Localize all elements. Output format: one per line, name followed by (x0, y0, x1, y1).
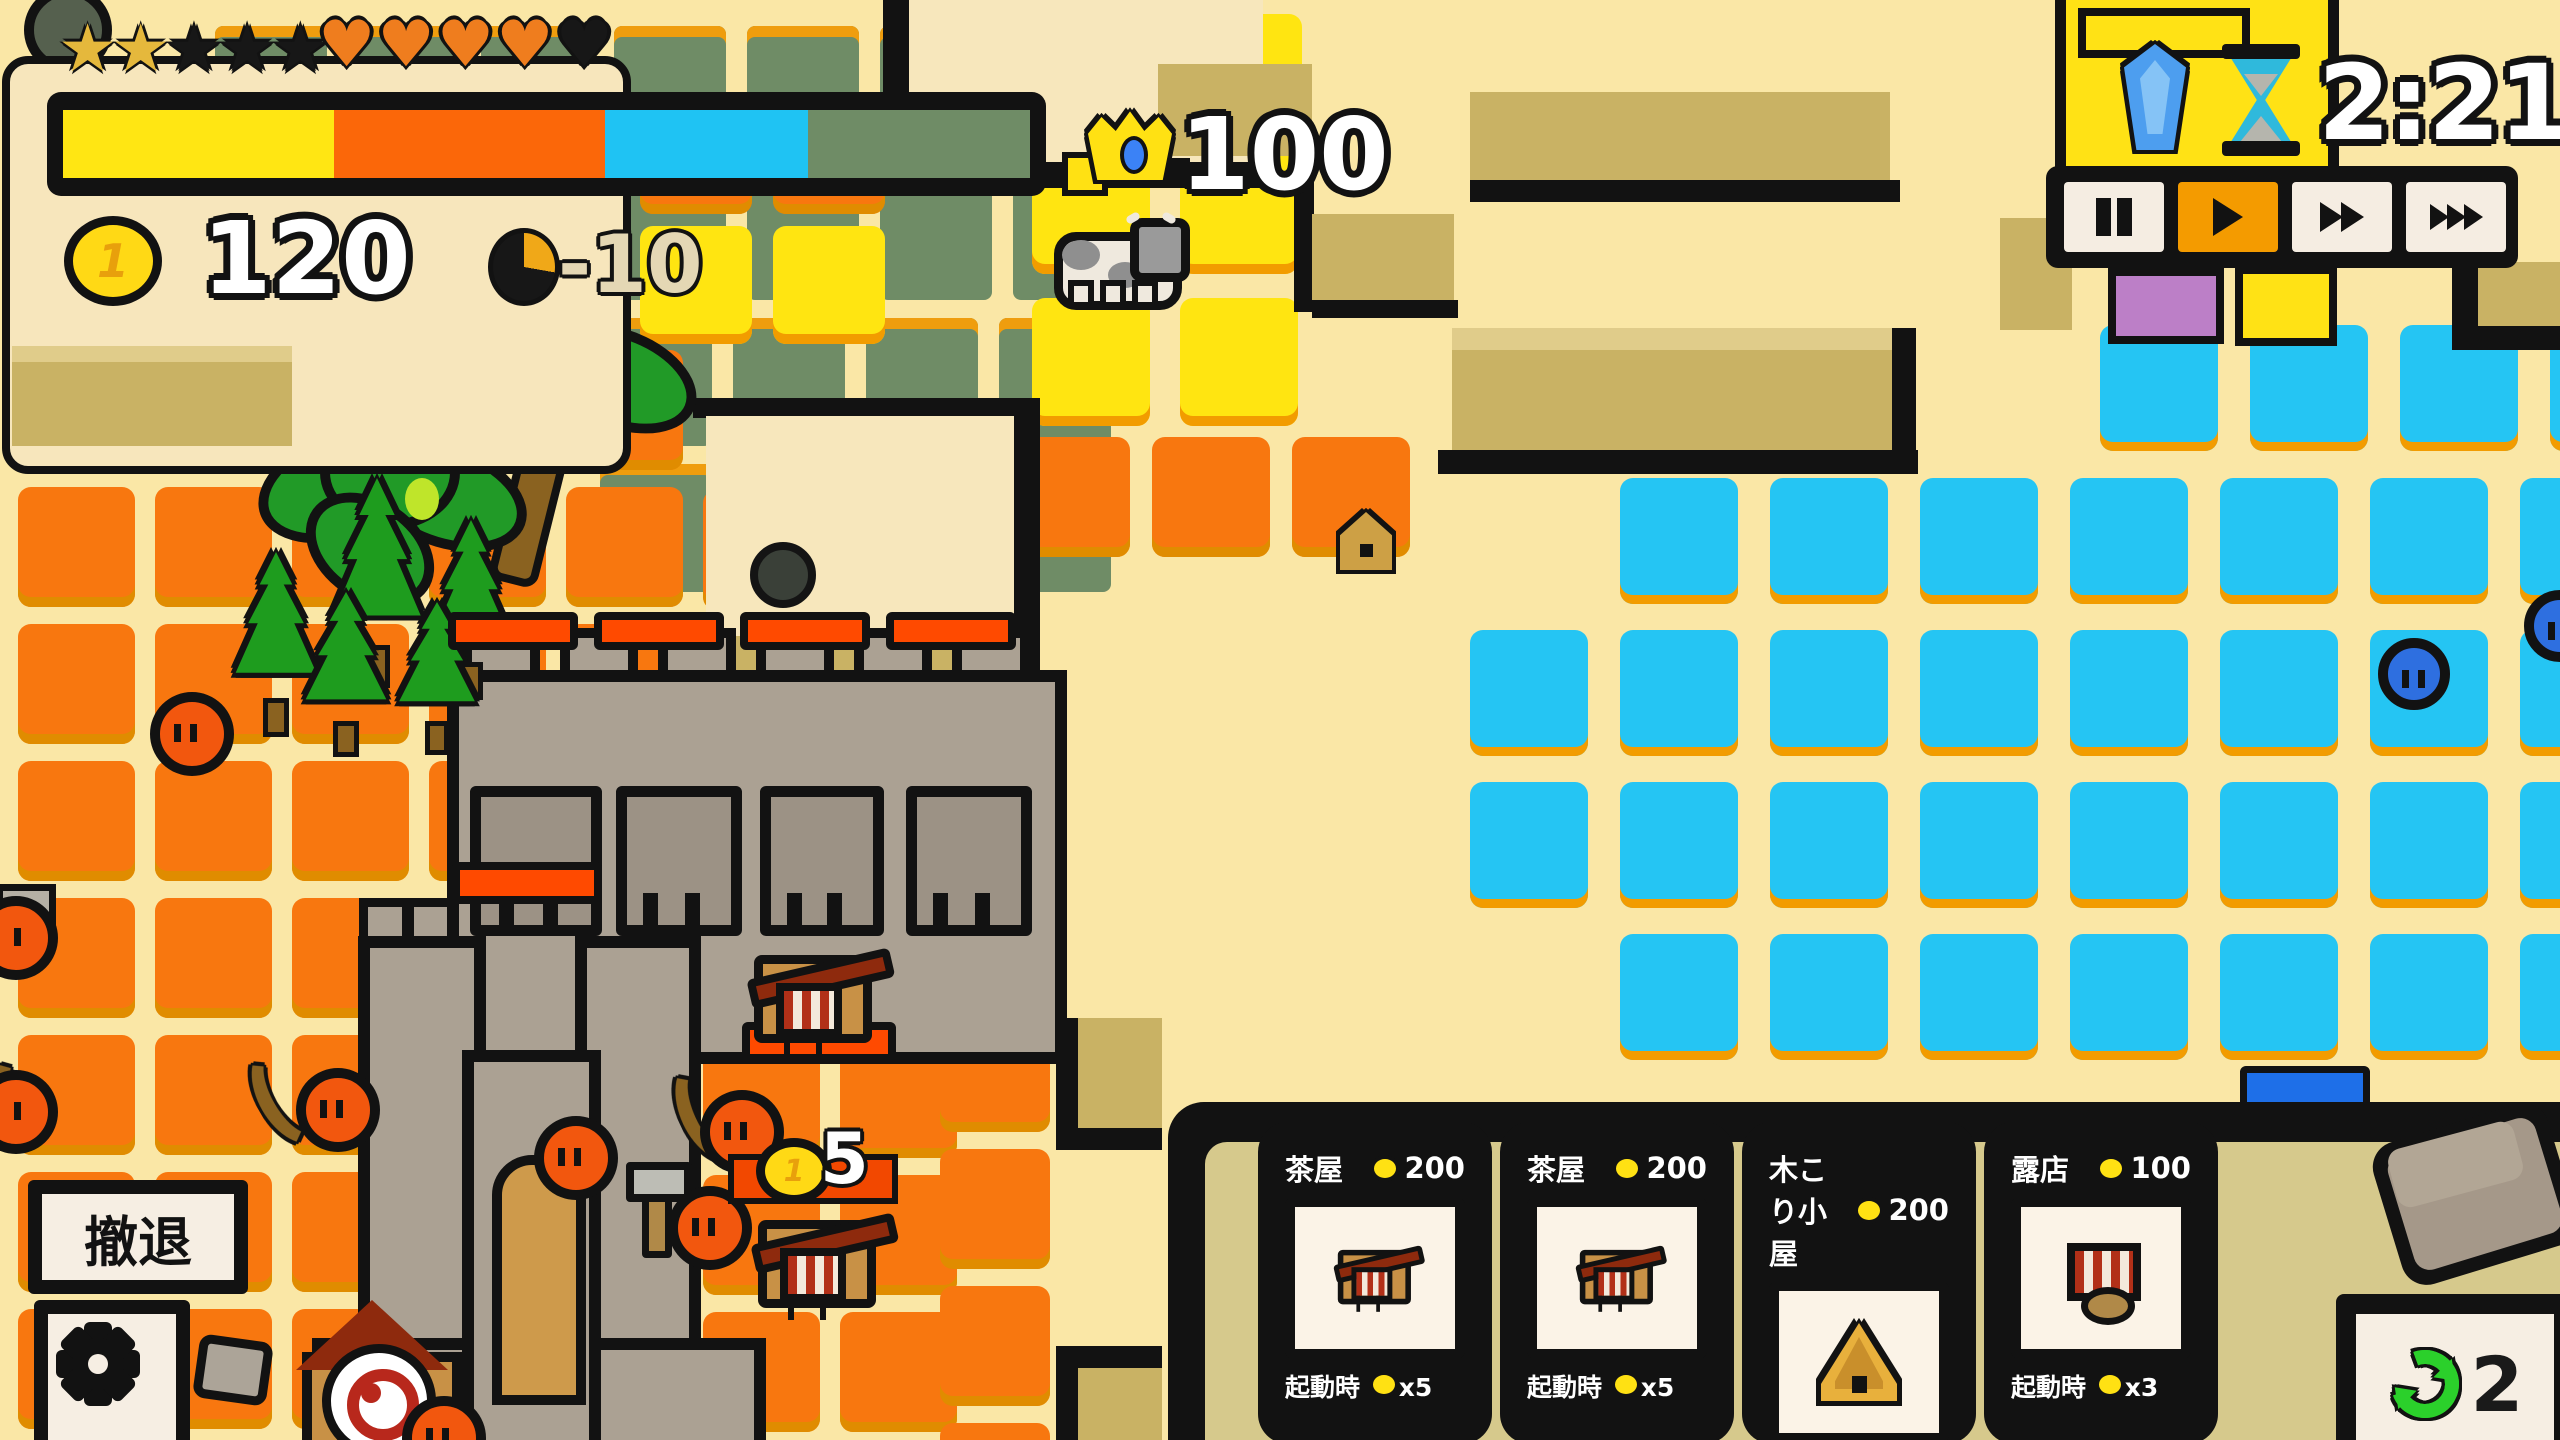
wall-health-bar (594, 612, 724, 650)
teahouse-icon (1335, 1231, 1414, 1317)
coin-symbol: 1 (784, 1154, 805, 1189)
plateau-wall (1452, 350, 1902, 458)
map-tile-orange (566, 487, 683, 607)
wall-health-bar-small (452, 862, 602, 904)
coin-icon (2096, 1155, 2126, 1182)
card-cost: 200 (1646, 1151, 1707, 1185)
reroll-count: 2 (2471, 1340, 2524, 1429)
star-filled-icon: ★ (111, 10, 164, 87)
card-stall[interactable]: 露店 100 起動時 x3 (1984, 1122, 2218, 1440)
map-tile-cyan (2370, 934, 2488, 1060)
wall-health-bar (740, 612, 870, 650)
plateau-border (1892, 328, 1916, 474)
plateau-wall (1078, 1018, 1162, 1130)
wave-progress-bar (47, 92, 1046, 196)
map-tile-orange (940, 1423, 1050, 1440)
map-tile-cyan (1770, 478, 1888, 604)
star-filled-icon: ★ (58, 10, 111, 87)
map-tile-cyan (1770, 934, 1888, 1060)
map-tile-cyan (2220, 478, 2338, 604)
card-image (1769, 1281, 1949, 1440)
plateau-border (693, 398, 1021, 418)
coin-icon (1854, 1197, 1884, 1224)
reroll-button[interactable]: 2 (2336, 1294, 2560, 1440)
pause-button[interactable] (2064, 182, 2164, 252)
coin-symbol: 1 (97, 234, 129, 288)
coin-icon (1369, 1371, 1399, 1398)
map-tile-cyan (1920, 934, 2038, 1060)
map-tile-cyan (1920, 478, 2038, 604)
map-tile-cyan (1620, 478, 1738, 604)
plateau-border (1056, 1346, 1162, 1368)
card-image (1527, 1197, 1707, 1359)
coin-gain-value: 5 (820, 1118, 869, 1200)
boulder (750, 542, 816, 608)
coin-delta: -10 (558, 218, 703, 311)
card-effect: 起動時 x5 (1285, 1371, 1465, 1404)
hud-panel-ledge-top (12, 346, 292, 362)
play-icon (2213, 198, 2243, 236)
small-rock (192, 1333, 274, 1407)
card-cost: 100 (2130, 1151, 2191, 1185)
retreat-label: 撤退 (84, 1198, 192, 1277)
plateau-wall (1452, 328, 1902, 350)
map-tile-yellow (1032, 298, 1150, 426)
teahouse-building (750, 925, 878, 1063)
card-effect: 起動時 x3 (2011, 1371, 2191, 1404)
star-rating: ★★★★★ (58, 10, 324, 87)
card-image (2011, 1197, 2191, 1359)
coin-icon (1370, 1155, 1400, 1182)
plateau-wall (1470, 92, 1890, 187)
map-tile-cyan (1770, 782, 1888, 908)
woodcutter-hut-icon (1821, 1323, 1897, 1401)
coin-icon: 1 (64, 216, 162, 306)
fast-forward-2-icon (2320, 202, 2343, 232)
plateau-border (1056, 1368, 1078, 1440)
map-tile-cyan (2070, 934, 2188, 1060)
map-tile-cyan (2070, 782, 2188, 908)
map-tile-cyan (2220, 934, 2338, 1060)
map-tile-cyan (2520, 934, 2560, 1060)
reroll-icon (2387, 1346, 2463, 1422)
castle-window (470, 786, 602, 936)
map-tile-cyan (2520, 782, 2560, 908)
map-tile-cyan (2520, 478, 2560, 604)
plateau-wall (2478, 262, 2560, 328)
card-name: 木こり小屋 (1769, 1147, 1854, 1273)
teahouse-building (754, 1190, 882, 1328)
yellow-building-part (2235, 266, 2337, 346)
map-tile-cyan (1620, 782, 1738, 908)
heart-filled-icon: ♥ (496, 8, 555, 82)
cow (1046, 212, 1180, 308)
hut-marker (1340, 512, 1392, 570)
plateau-wall (1312, 214, 1454, 310)
crown-gem (1120, 136, 1148, 174)
star-empty-icon: ★ (271, 10, 324, 87)
plateau-border (1438, 450, 1918, 474)
wave-progress-segments (63, 110, 1030, 178)
timer: 2:21 (2318, 42, 2560, 164)
map-tile-cyan (1620, 934, 1738, 1060)
wave-segment-yellow (63, 110, 334, 178)
wall-health-bar (886, 612, 1016, 650)
map-tile-cyan (1770, 630, 1888, 756)
villager-unit (296, 1068, 380, 1152)
retreat-button[interactable]: 撤退 (28, 1180, 248, 1294)
map-tile-orange (18, 487, 135, 607)
map-tile-cyan (2370, 478, 2488, 604)
plateau-border (1056, 1128, 1162, 1150)
map-tile-cyan (2370, 782, 2488, 908)
card-name: 露店 (2011, 1147, 2069, 1189)
map-tile-cyan (2220, 630, 2338, 756)
teahouse-icon (1577, 1231, 1656, 1317)
plateau-border (1470, 180, 1900, 202)
card-effect: 起動時 x5 (1527, 1371, 1707, 1404)
star-empty-icon: ★ (218, 10, 271, 87)
map-tile-orange (1152, 437, 1270, 557)
coin-count: 120 (202, 200, 411, 317)
map-tile-yellow (1180, 298, 1298, 426)
map-tile-yellow (773, 226, 885, 344)
map-tile-orange (940, 1286, 1050, 1406)
heart-filled-icon: ♥ (318, 8, 377, 82)
wall-health-bar (448, 612, 578, 650)
plateau-border (1312, 300, 1458, 318)
wave-segment-remainder (808, 110, 1030, 178)
gem-icon (2124, 44, 2186, 150)
map-tile-cyan (1920, 782, 2038, 908)
map-tile-cyan (1620, 630, 1738, 756)
speed-controls (2046, 166, 2518, 268)
map-tile-orange (940, 1149, 1050, 1269)
map-tile-cyan (1920, 630, 2038, 756)
card-image (1285, 1197, 1465, 1359)
card-cost: 200 (1888, 1193, 1949, 1227)
map-tile-cyan (2220, 782, 2338, 908)
map-tile-orange (18, 761, 135, 881)
map-tile-cyan (2070, 630, 2188, 756)
map-tile-orange (155, 761, 272, 881)
map-tile-orange (292, 761, 409, 881)
card-woodcutter-hut[interactable]: 木こり小屋 200 村人が森を攻撃したと き、6 (1742, 1122, 1976, 1440)
pause-icon (2096, 198, 2111, 236)
wave-segment-orange (334, 110, 605, 178)
coin-icon (2095, 1371, 2125, 1398)
lives-hearts: ♥♥♥♥♥ (318, 8, 615, 82)
map-tile-orange (155, 898, 272, 1018)
plateau-middle (706, 416, 1014, 640)
purple-building-part (2108, 268, 2224, 344)
fast-forward-3-button[interactable] (2406, 182, 2506, 252)
stall-icon (2063, 1243, 2139, 1313)
card-cost: 200 (1404, 1151, 1465, 1185)
castle-window (760, 786, 884, 936)
map-tile-orange (18, 624, 135, 744)
settings-button[interactable] (34, 1300, 190, 1440)
card-teahouse-2[interactable]: 茶屋 200 起動時 x5 (1500, 1122, 1734, 1440)
card-name: 茶屋 (1527, 1147, 1585, 1189)
plateau-wall (1078, 1368, 1162, 1440)
fast-forward-2-button[interactable] (2292, 182, 2392, 252)
map-tile-cyan (1470, 630, 1588, 756)
castle-window (616, 786, 742, 936)
wave-segment-cyan (605, 110, 808, 178)
income-pie-icon (488, 228, 560, 306)
villager-unit (150, 692, 234, 776)
heart-filled-icon: ♥ (377, 8, 436, 82)
heart-empty-icon: ♥ (556, 8, 615, 82)
hourglass-icon (2222, 44, 2300, 156)
game-screen: ★★★★★ ♥♥♥♥♥ 1 120 -10 100 2:21 (0, 0, 2560, 1440)
map-tile-cyan (2070, 478, 2188, 604)
enemy-unit (2378, 638, 2450, 710)
castle-window (906, 786, 1032, 936)
pine-tree (298, 592, 394, 752)
crown-icon (1088, 110, 1172, 180)
plateau-border (2452, 326, 2560, 350)
heart-filled-icon: ♥ (437, 8, 496, 82)
villager-unit (534, 1116, 618, 1200)
card-name: 茶屋 (1285, 1147, 1343, 1189)
star-empty-icon: ★ (164, 10, 217, 87)
card-teahouse-1[interactable]: 茶屋 200 起動時 x5 (1258, 1122, 1492, 1440)
map-tile-cyan (1470, 782, 1588, 908)
crown-count: 100 (1180, 96, 1389, 213)
coin-icon (1611, 1371, 1641, 1398)
play-button[interactable] (2178, 182, 2278, 252)
coin-icon (1612, 1155, 1642, 1182)
